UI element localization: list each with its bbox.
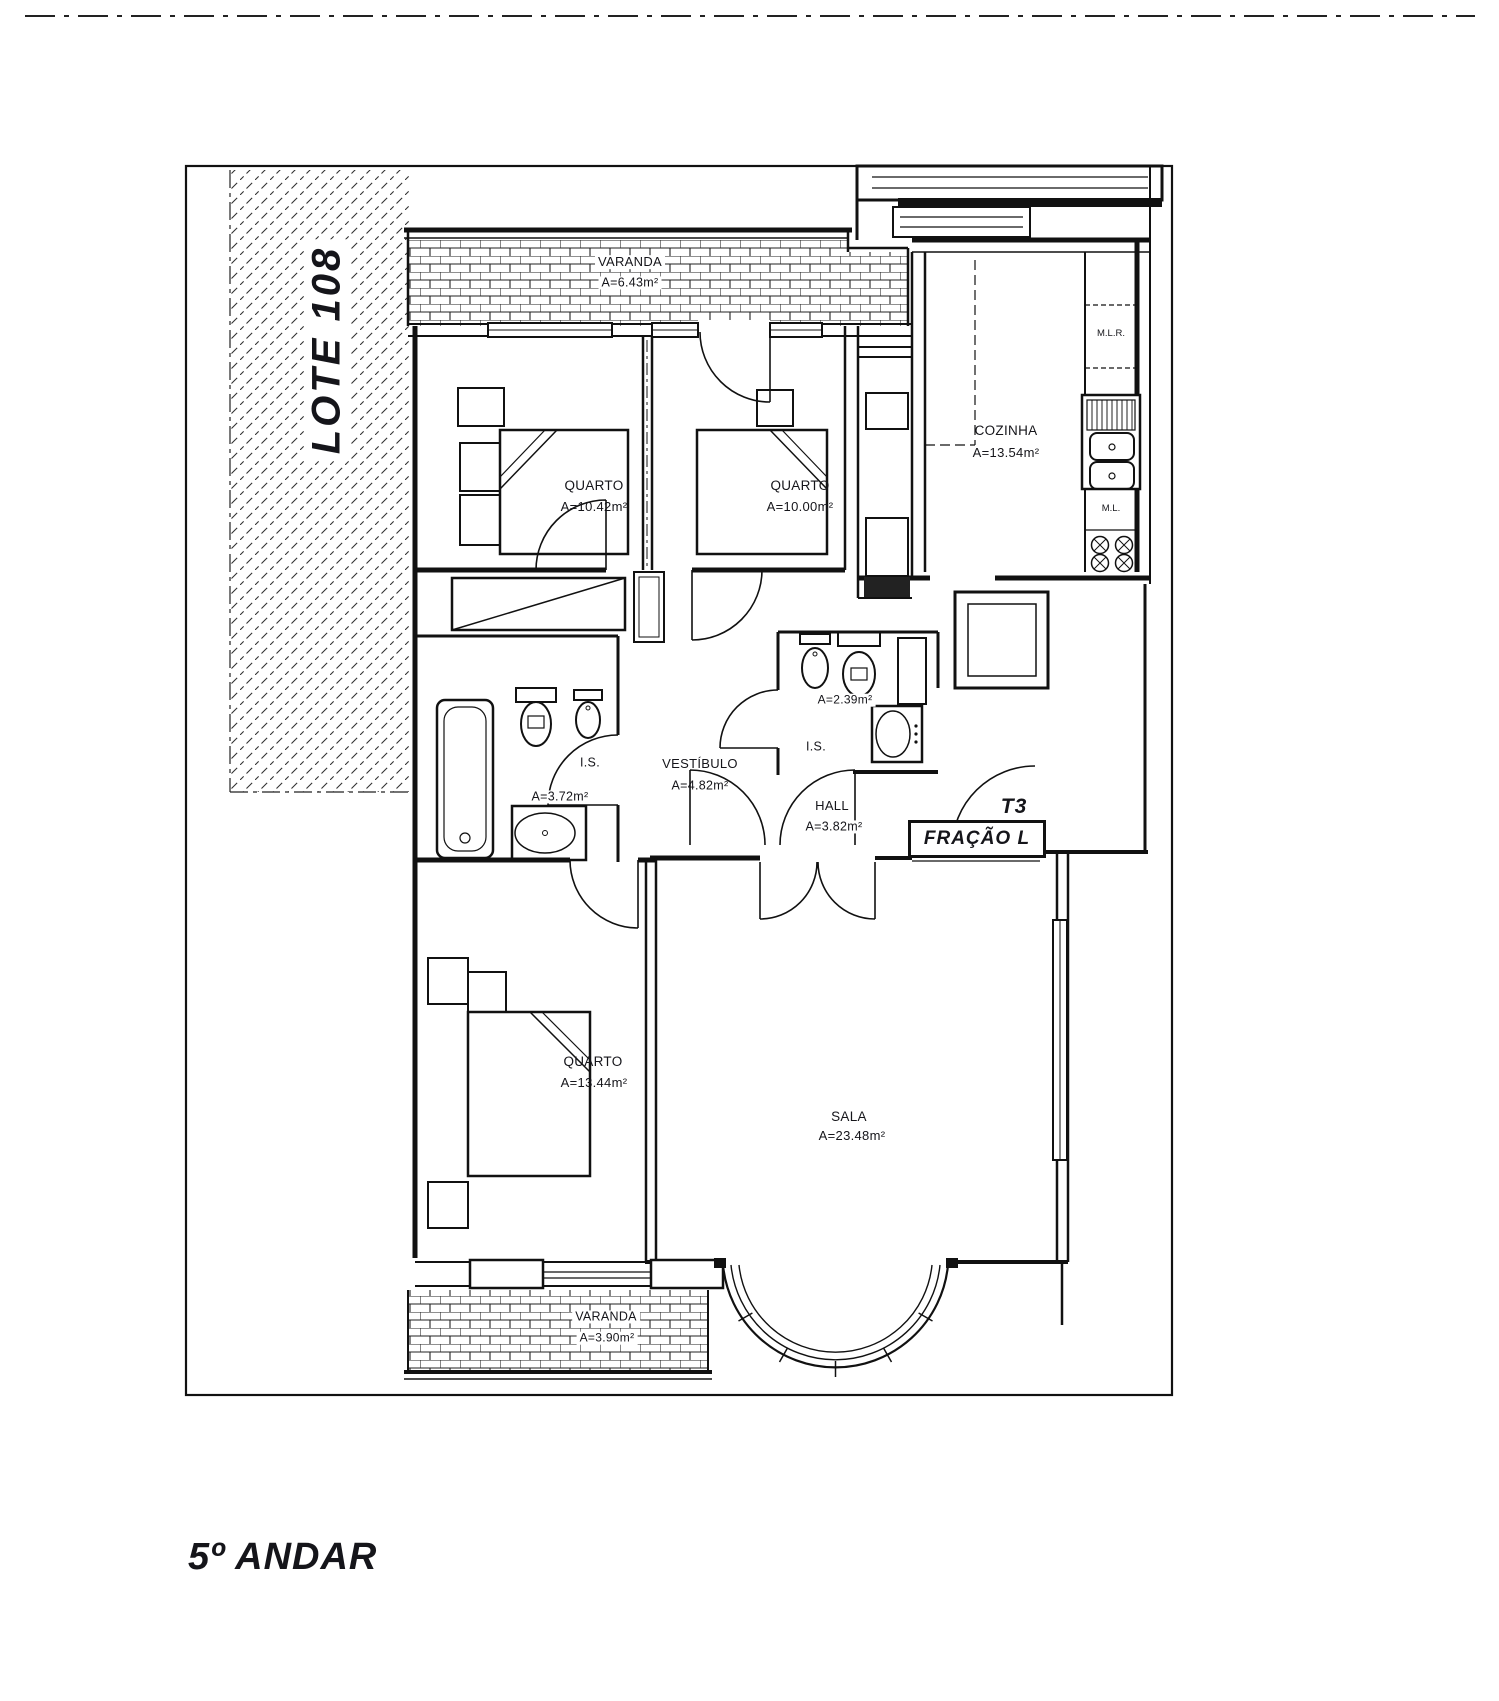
bidet: [574, 690, 602, 700]
room-area-vestibulo: A=4.82m²: [672, 779, 729, 792]
toilet-tank: [838, 632, 880, 646]
toilet-bowl: [843, 652, 875, 696]
room-label-quarto-3: QUARTO: [563, 1055, 622, 1069]
room-area-is-1: A=3.72m²: [529, 790, 592, 803]
room-area-hall: A=3.82m²: [803, 820, 866, 833]
bay-window: [714, 1258, 958, 1377]
unit-type-label: T3: [1001, 795, 1028, 819]
page-title: 5º ANDAR: [188, 1536, 377, 1579]
room-area-quarto-1: A=10.42m²: [561, 500, 628, 514]
sala-window: [1053, 920, 1067, 1160]
room-area-sala: A=23.48m²: [819, 1129, 886, 1143]
room-label-vestibulo: VESTÍBULO: [662, 757, 738, 771]
cabinet: [898, 638, 926, 704]
door-is-2: [720, 690, 778, 748]
bed-quarto-3: [428, 958, 590, 1228]
toilet-bowl: [521, 702, 551, 746]
room-label-varanda-bottom: VARANDA: [572, 1310, 640, 1323]
door-quarto-3: [570, 860, 638, 928]
bed-quarto-2: [697, 390, 827, 554]
light-shaft: [955, 592, 1048, 688]
fraction-label: FRAÇÃO L: [924, 828, 1030, 850]
floor-plan-drawing: [0, 0, 1499, 1701]
lot-label: LOTE 108: [305, 240, 350, 461]
door-arcs: [536, 500, 1035, 928]
bathtub: [437, 700, 493, 858]
duct-column: [634, 572, 664, 642]
room-area-cozinha: A=13.54m²: [973, 446, 1040, 460]
bidet: [800, 634, 830, 644]
facade-bottom: [415, 1260, 723, 1288]
stairwell: [857, 166, 1162, 240]
stove-burners: [1092, 537, 1133, 572]
fraction-label-box: FRAÇÃO L: [908, 820, 1046, 858]
balcony-door-arc: [700, 332, 770, 402]
room-label-is-2: I.S.: [803, 740, 829, 753]
room-label-hall: HALL: [812, 799, 852, 813]
appliance-label-dishwasher: M.L.: [1102, 504, 1120, 514]
appliance-label-washing-machine: M.L.R.: [1097, 329, 1125, 339]
room-label-quarto-2: QUARTO: [770, 479, 829, 493]
bathroom-1-fixtures: [437, 688, 602, 860]
room-area-quarto-2: A=10.00m²: [767, 500, 834, 514]
room-label-cozinha: COZINHA: [975, 424, 1038, 438]
room-area-is-2: A=2.39m²: [815, 694, 876, 707]
door-quarto-2: [692, 570, 762, 640]
room-label-sala: SALA: [831, 1110, 867, 1124]
room-label-is-1: I.S.: [577, 756, 603, 769]
wardrobe: [452, 578, 625, 630]
kitchen-sink: [1082, 395, 1140, 489]
service-cabinets: [864, 393, 910, 597]
toilet-tank: [516, 688, 556, 702]
room-label-varanda-top: VARANDA: [595, 255, 665, 269]
walls: [415, 240, 1150, 1325]
floorplan-page: LOTE 108 VARANDA A=6.43m² QUARTO A=10.42…: [0, 0, 1499, 1701]
room-area-varanda-bottom: A=3.90m²: [577, 1332, 638, 1345]
room-area-quarto-3: A=13.44m²: [561, 1076, 628, 1090]
sala-door-right: [818, 862, 875, 919]
facade-top: [408, 320, 912, 340]
bed-quarto-1: [458, 388, 628, 554]
balcony-bottom: [404, 1290, 712, 1379]
sala-door-left: [760, 862, 817, 919]
room-area-varanda-top: A=6.43m²: [599, 276, 662, 289]
room-label-quarto-1: QUARTO: [564, 479, 623, 493]
